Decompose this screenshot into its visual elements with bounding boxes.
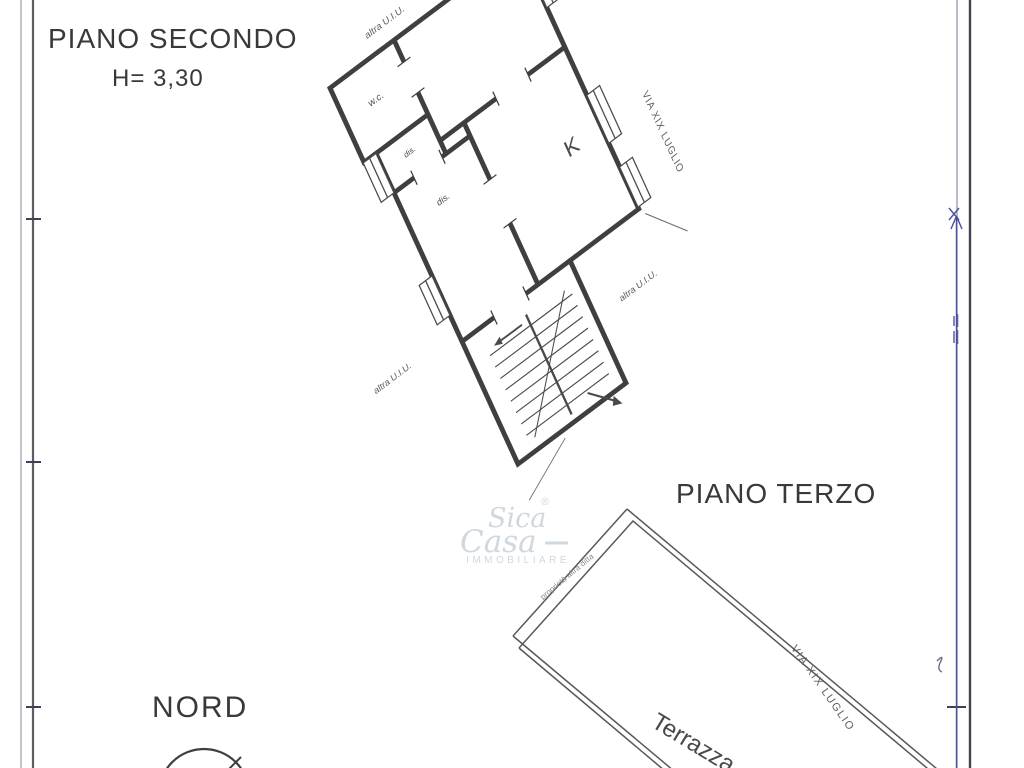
floor3-terrace: Terrazza VIA XIX LUGLIO proprietà altra …	[513, 509, 940, 768]
right-margin-rule	[937, 0, 970, 768]
left-margin-rule	[21, 0, 41, 768]
terrace-label: Terrazza	[647, 708, 740, 768]
annotation-altra-uiu-bottom-left: altra U.I.U.	[372, 360, 412, 396]
watermark: Sica ® Casa IMMOBILIARE	[460, 497, 570, 566]
north-compass	[159, 749, 249, 768]
watermark-sub: IMMOBILIARE	[466, 555, 570, 566]
compass-circle	[159, 749, 249, 768]
floor2-height-label: H= 3,30	[112, 65, 204, 92]
scanned-floorplan-sheet: PIANO SECONDO H= 3,30 PIANO TERZO NORD S…	[0, 0, 1024, 768]
annotation-street-floor3: VIA XIX LUGLIO	[788, 643, 857, 734]
leader-line	[645, 194, 687, 250]
annotation-street-floor2: VIA XIX LUGLIO	[640, 89, 686, 176]
annotation-altra-uiu-bottom-right: altra U.I.U.	[618, 268, 658, 304]
floor2-title: PIANO SECONDO	[48, 23, 297, 54]
floor3-title: PIANO TERZO	[676, 478, 876, 509]
nord-label: NORD	[152, 691, 248, 724]
floor2-plan: w.c. dis. dis. K altra U.I.U. VIA XIX LU…	[249, 0, 758, 559]
vertical-dimension-line	[949, 208, 962, 768]
compass-needle	[204, 757, 241, 768]
floor2-outer-walls	[330, 0, 695, 473]
floorplan-drawing: PIANO SECONDO H= 3,30 PIANO TERZO NORD S…	[0, 0, 1024, 768]
terrace-outer-wall	[513, 509, 937, 768]
watermark-reg-icon: ®	[540, 497, 550, 508]
pen-squiggle-mark	[937, 657, 942, 672]
